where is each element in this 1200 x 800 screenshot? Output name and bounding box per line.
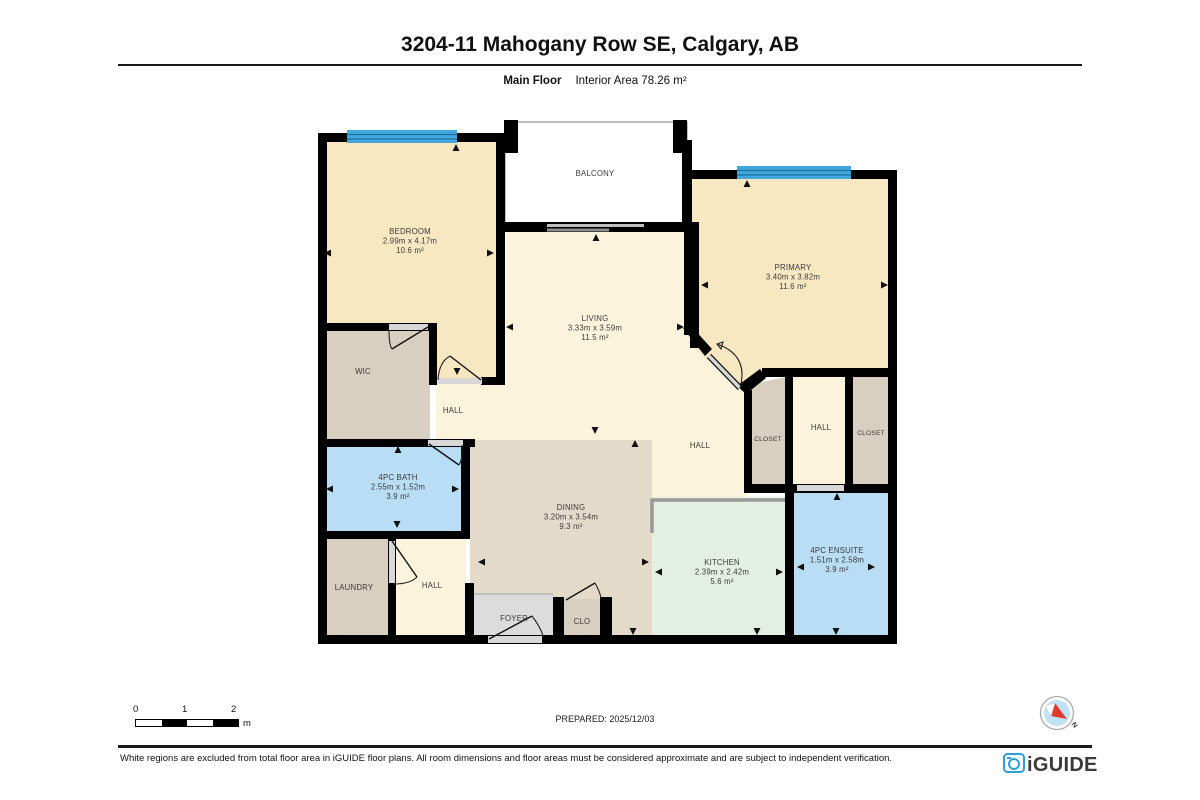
iguide-logo: iGUIDE	[1002, 750, 1102, 778]
label-kitchen-dims: 2.39m x 2.42m	[695, 568, 749, 577]
floorplan-svg: BALCONY BEDROOM 2.99m x 4.17m 10.6 m² PR…	[0, 0, 1200, 800]
label-living-area: 11.5 m²	[581, 333, 608, 342]
label-dining-dims: 3.20m x 3.54m	[544, 513, 598, 522]
label-kitchen-name: KITCHEN	[704, 558, 740, 567]
label-closet-right: CLOSET	[857, 430, 885, 437]
label-hall-center: HALL	[690, 441, 711, 450]
label-bedroom-area: 10.6 m²	[396, 246, 424, 255]
compass-icon: N	[1034, 692, 1084, 740]
label-laundry: LAUNDRY	[335, 583, 374, 592]
label-bath-name: 4PC BATH	[378, 473, 417, 482]
label-ensuite-area: 3.9 m²	[825, 565, 848, 574]
label-kitchen-area: 5.6 m²	[710, 577, 733, 586]
label-living-name: LIVING	[582, 314, 609, 323]
label-balcony: BALCONY	[576, 169, 615, 178]
room-closet-left	[748, 377, 786, 492]
label-ensuite-name: 4PC ENSUITE	[810, 546, 863, 555]
label-hall-right: HALL	[811, 423, 832, 432]
iguide-camera-icon	[1004, 754, 1024, 772]
footer-divider	[118, 745, 1092, 748]
room-wic	[322, 327, 430, 443]
label-primary-area: 11.6 m²	[779, 282, 806, 291]
label-foyer: FOYER	[500, 614, 528, 623]
balcony-slider-panel	[547, 229, 609, 232]
label-primary-name: PRIMARY	[775, 263, 812, 272]
label-bedroom-name: BEDROOM	[389, 227, 431, 236]
label-dining-area: 9.3 m²	[559, 522, 582, 531]
label-hall-lower: HALL	[422, 581, 443, 590]
label-hall-upper: HALL	[443, 406, 464, 415]
room-fills	[322, 122, 893, 640]
label-primary-dims: 3.40m x 3.82m	[766, 273, 820, 282]
disclaimer-text: White regions are excluded from total fl…	[120, 753, 980, 764]
label-clo: CLO	[574, 617, 591, 626]
label-ensuite-dims: 1.51m x 2.58m	[810, 556, 864, 565]
iguide-logo-text: iGUIDE	[1027, 754, 1098, 776]
floorplan-page: 3204-11 Mahogany Row SE, Calgary, AB Mai…	[0, 0, 1200, 800]
bedroom-window	[347, 130, 457, 143]
label-living-dims: 3.33m x 3.59m	[568, 324, 622, 333]
prepared-date: PREPARED: 2025/12/03	[0, 714, 1200, 724]
label-wic: WIC	[355, 367, 371, 376]
label-bedroom-dims: 2.99m x 4.17m	[383, 237, 437, 246]
label-closet-left: CLOSET	[754, 436, 782, 443]
primary-window	[737, 166, 851, 179]
balcony-slider-track	[547, 224, 644, 227]
label-bath-area: 3.9 m²	[386, 492, 409, 501]
label-bath-dims: 2.55m x 1.52m	[371, 483, 425, 492]
label-dining-name: DINING	[557, 503, 586, 512]
